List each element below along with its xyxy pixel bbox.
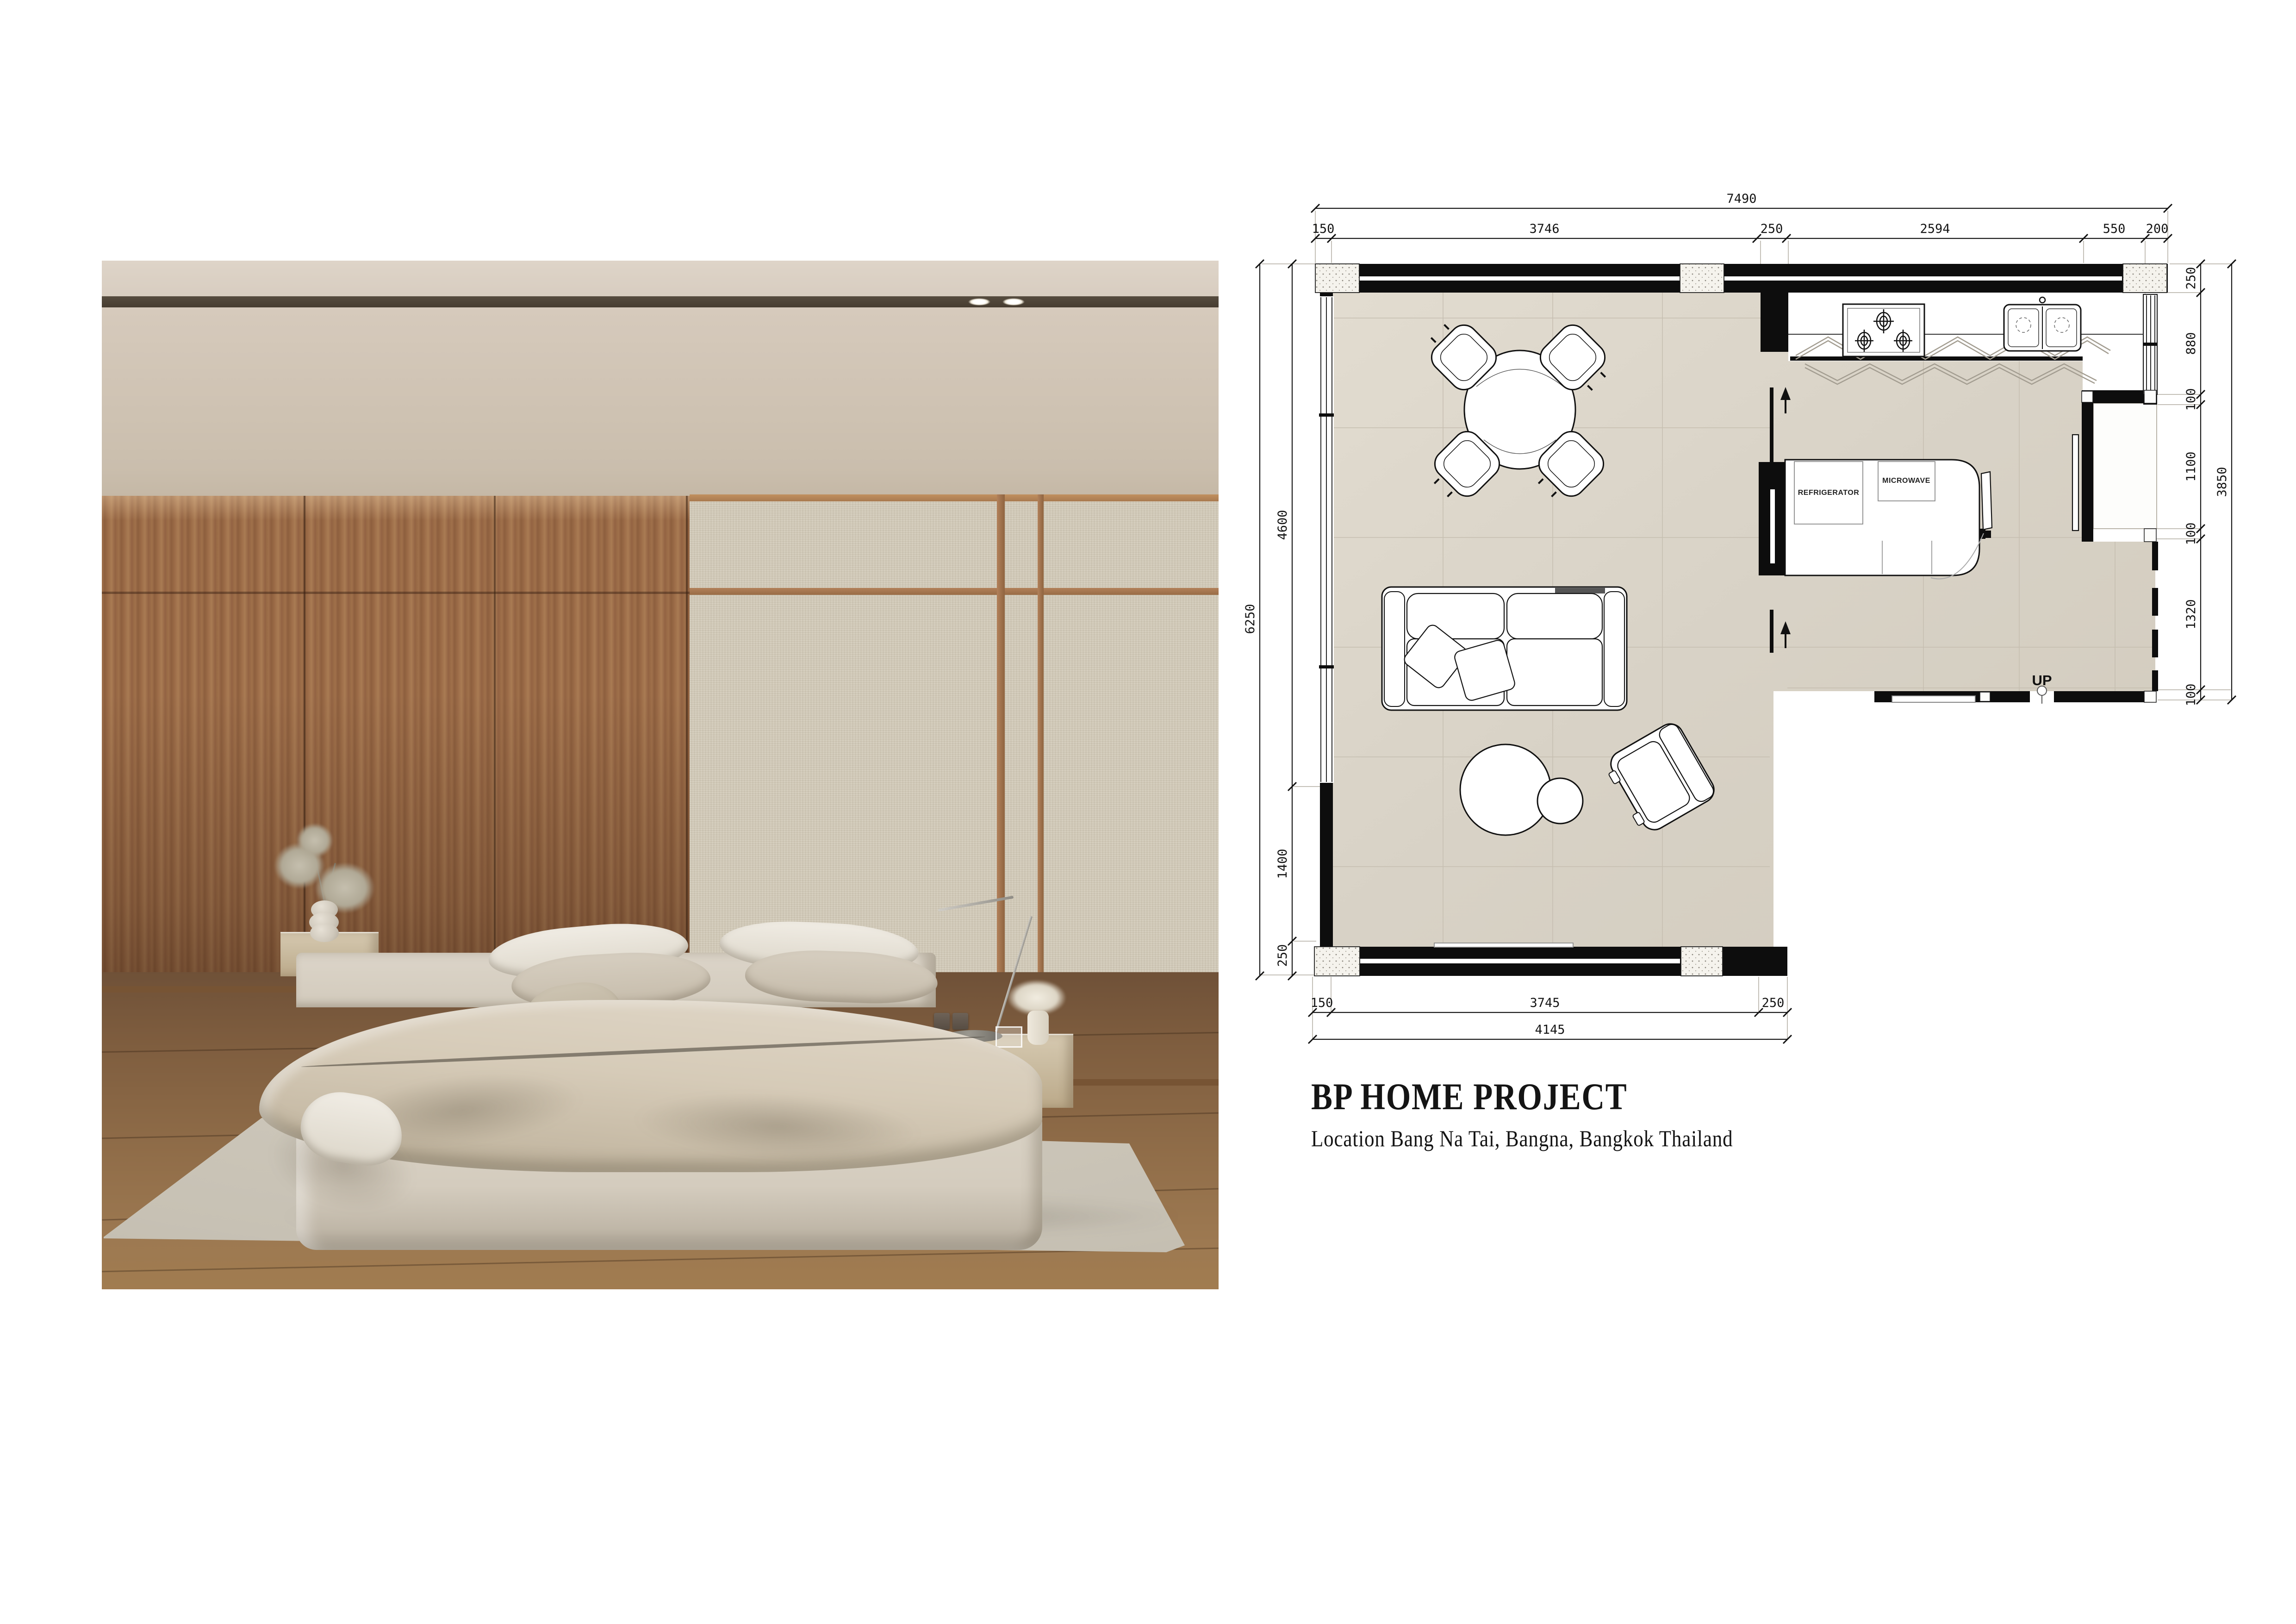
dim-right-seg: 100 — [2184, 684, 2198, 706]
dim-right-seg: 1320 — [2184, 599, 2198, 629]
dim-right-seg: 100 — [2184, 523, 2198, 545]
dim-bottom-seg: 3745 — [1530, 996, 1560, 1010]
dim-top-seg: 150 — [1312, 222, 1335, 236]
cooktop — [1843, 304, 1924, 356]
dim-top-seg: 250 — [1761, 222, 1783, 236]
window-left — [1319, 296, 1334, 783]
dim-top-seg: 200 — [2146, 222, 2169, 236]
dim-bottom-seg: 150 — [1311, 996, 1333, 1010]
kitchen-island: REFRIGERATOR MICROWAVE — [1785, 460, 1979, 575]
dim-right-total: 3850 — [2215, 467, 2229, 497]
dim-right-seg: 1100 — [2184, 451, 2198, 481]
dim-left-total: 6250 — [1243, 604, 1257, 634]
up-label: UP — [2032, 672, 2052, 688]
dim-top-seg: 550 — [2103, 222, 2126, 236]
dim-top-seg: 2594 — [1920, 222, 1950, 236]
sink — [2004, 297, 2081, 351]
dim-left-seg: 4600 — [1276, 510, 1290, 540]
coffee-table-large — [1460, 744, 1551, 835]
dim-left-seg: 1400 — [1276, 849, 1290, 879]
microwave-label: MICROWAVE — [1882, 477, 1930, 485]
coffee-table-small — [1537, 778, 1583, 824]
project-location: Location Bang Na Tai, Bangna, Bangkok Th… — [1311, 1125, 1988, 1152]
sofa — [1382, 587, 1627, 710]
dim-right-seg: 250 — [2184, 267, 2198, 290]
tv-console — [1434, 943, 1573, 947]
dim-left-seg: 250 — [1276, 944, 1290, 967]
dim-bottom-total: 4145 — [1535, 1023, 1565, 1037]
floor-plan: REFRIGERATOR MICROWAVE — [0, 0, 2296, 1624]
dim-right-seg: 880 — [2184, 332, 2198, 355]
title-block: BP HOME PROJECT Location Bang Na Tai, Ba… — [1311, 1075, 2098, 1152]
dim-top-total: 7490 — [1726, 192, 1756, 206]
refrigerator-label: REFRIGERATOR — [1798, 489, 1860, 497]
dim-bottom-seg: 250 — [1762, 996, 1785, 1010]
faucet-icon — [2040, 297, 2045, 303]
dim-right-seg: 100 — [2184, 388, 2198, 411]
closet-niche — [2093, 403, 2157, 529]
entry-step — [1892, 696, 1975, 702]
window-right — [2143, 294, 2157, 394]
dim-top-seg: 3746 — [1529, 222, 1559, 236]
project-title: BP HOME PROJECT — [1311, 1075, 1972, 1118]
door-pivot-marker — [2037, 686, 2047, 704]
wall-niche-slot — [1770, 489, 1775, 563]
